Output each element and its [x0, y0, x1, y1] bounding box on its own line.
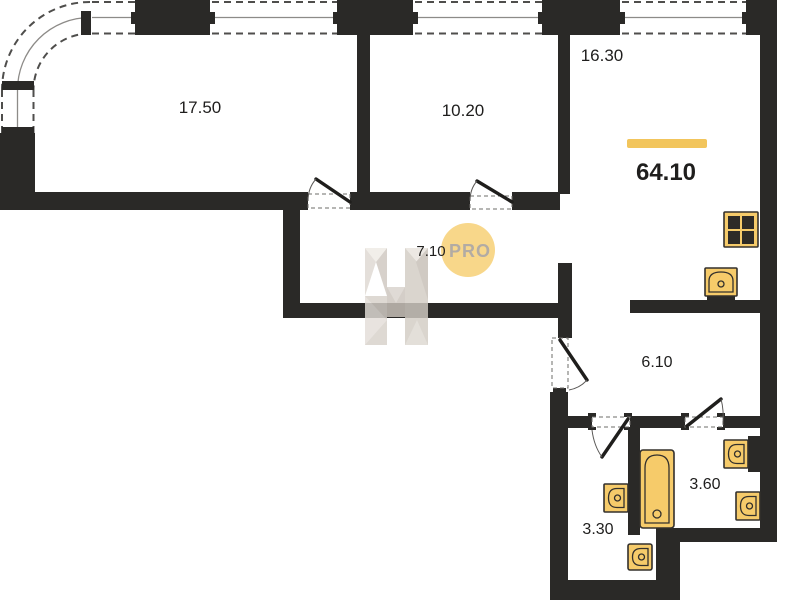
wall-segment [337, 0, 413, 35]
watermark-brand-text: PRO [449, 241, 491, 261]
bathroom-small-door [592, 417, 630, 457]
bathroom-small-area-label: 3.30 [582, 521, 613, 538]
corridor-area-label: 6.10 [641, 354, 672, 371]
bedroom-area-label: 10.20 [442, 101, 485, 120]
wall-segment [357, 35, 370, 194]
wall-segment [135, 0, 210, 35]
hallway-area-label: 7.10 [416, 243, 445, 260]
sink-icon [736, 492, 760, 520]
kitchen-area-label: 16.30 [581, 46, 624, 65]
total-area-accent-bar [627, 139, 707, 148]
living-room-door [308, 179, 350, 208]
wall-segment [723, 416, 760, 428]
total-area-block: 64.10 [627, 139, 707, 186]
wall-segment [0, 192, 308, 210]
sink-icon [604, 484, 628, 512]
bedroom-door [470, 181, 512, 209]
wall-segment [550, 392, 568, 582]
toilet-icon [628, 544, 652, 570]
wall-segment [283, 210, 300, 318]
floor-plan-drawing: 17.50 10.20 16.30 7.10 PRO 6.10 3.30 3.6… [0, 0, 793, 600]
wall-segment [558, 35, 570, 194]
wall-segment [630, 300, 776, 313]
wall-segment [542, 0, 620, 35]
entrance-door [552, 338, 587, 390]
balcony-glazing-glass-arc [18, 18, 91, 91]
bathtub-icon [640, 450, 674, 528]
wall-segment [512, 192, 560, 210]
left-window [2, 90, 34, 133]
bathroom-large-area-label: 3.60 [689, 476, 720, 493]
brand-h-logo-icon [365, 248, 428, 345]
wall-segment [628, 416, 640, 535]
living-room-area-label: 17.50 [179, 98, 222, 117]
fixtures [604, 212, 760, 570]
stove-icon [724, 212, 758, 247]
floor-plan-canvas: 17.50 10.20 16.30 7.10 PRO 6.10 3.30 3.6… [0, 0, 793, 600]
kitchen-sink-icon [705, 268, 737, 296]
sink-icon [724, 440, 748, 468]
wall-segment [748, 436, 760, 472]
balcony-glazing-inner-arc [34, 34, 91, 91]
wall-segment [760, 0, 777, 542]
balcony-glazing-outer-arc [2, 2, 90, 90]
wall-segment [670, 528, 776, 542]
wall-segment [558, 263, 572, 338]
wall-segment [350, 192, 470, 210]
total-area-label: 64.10 [636, 159, 696, 186]
